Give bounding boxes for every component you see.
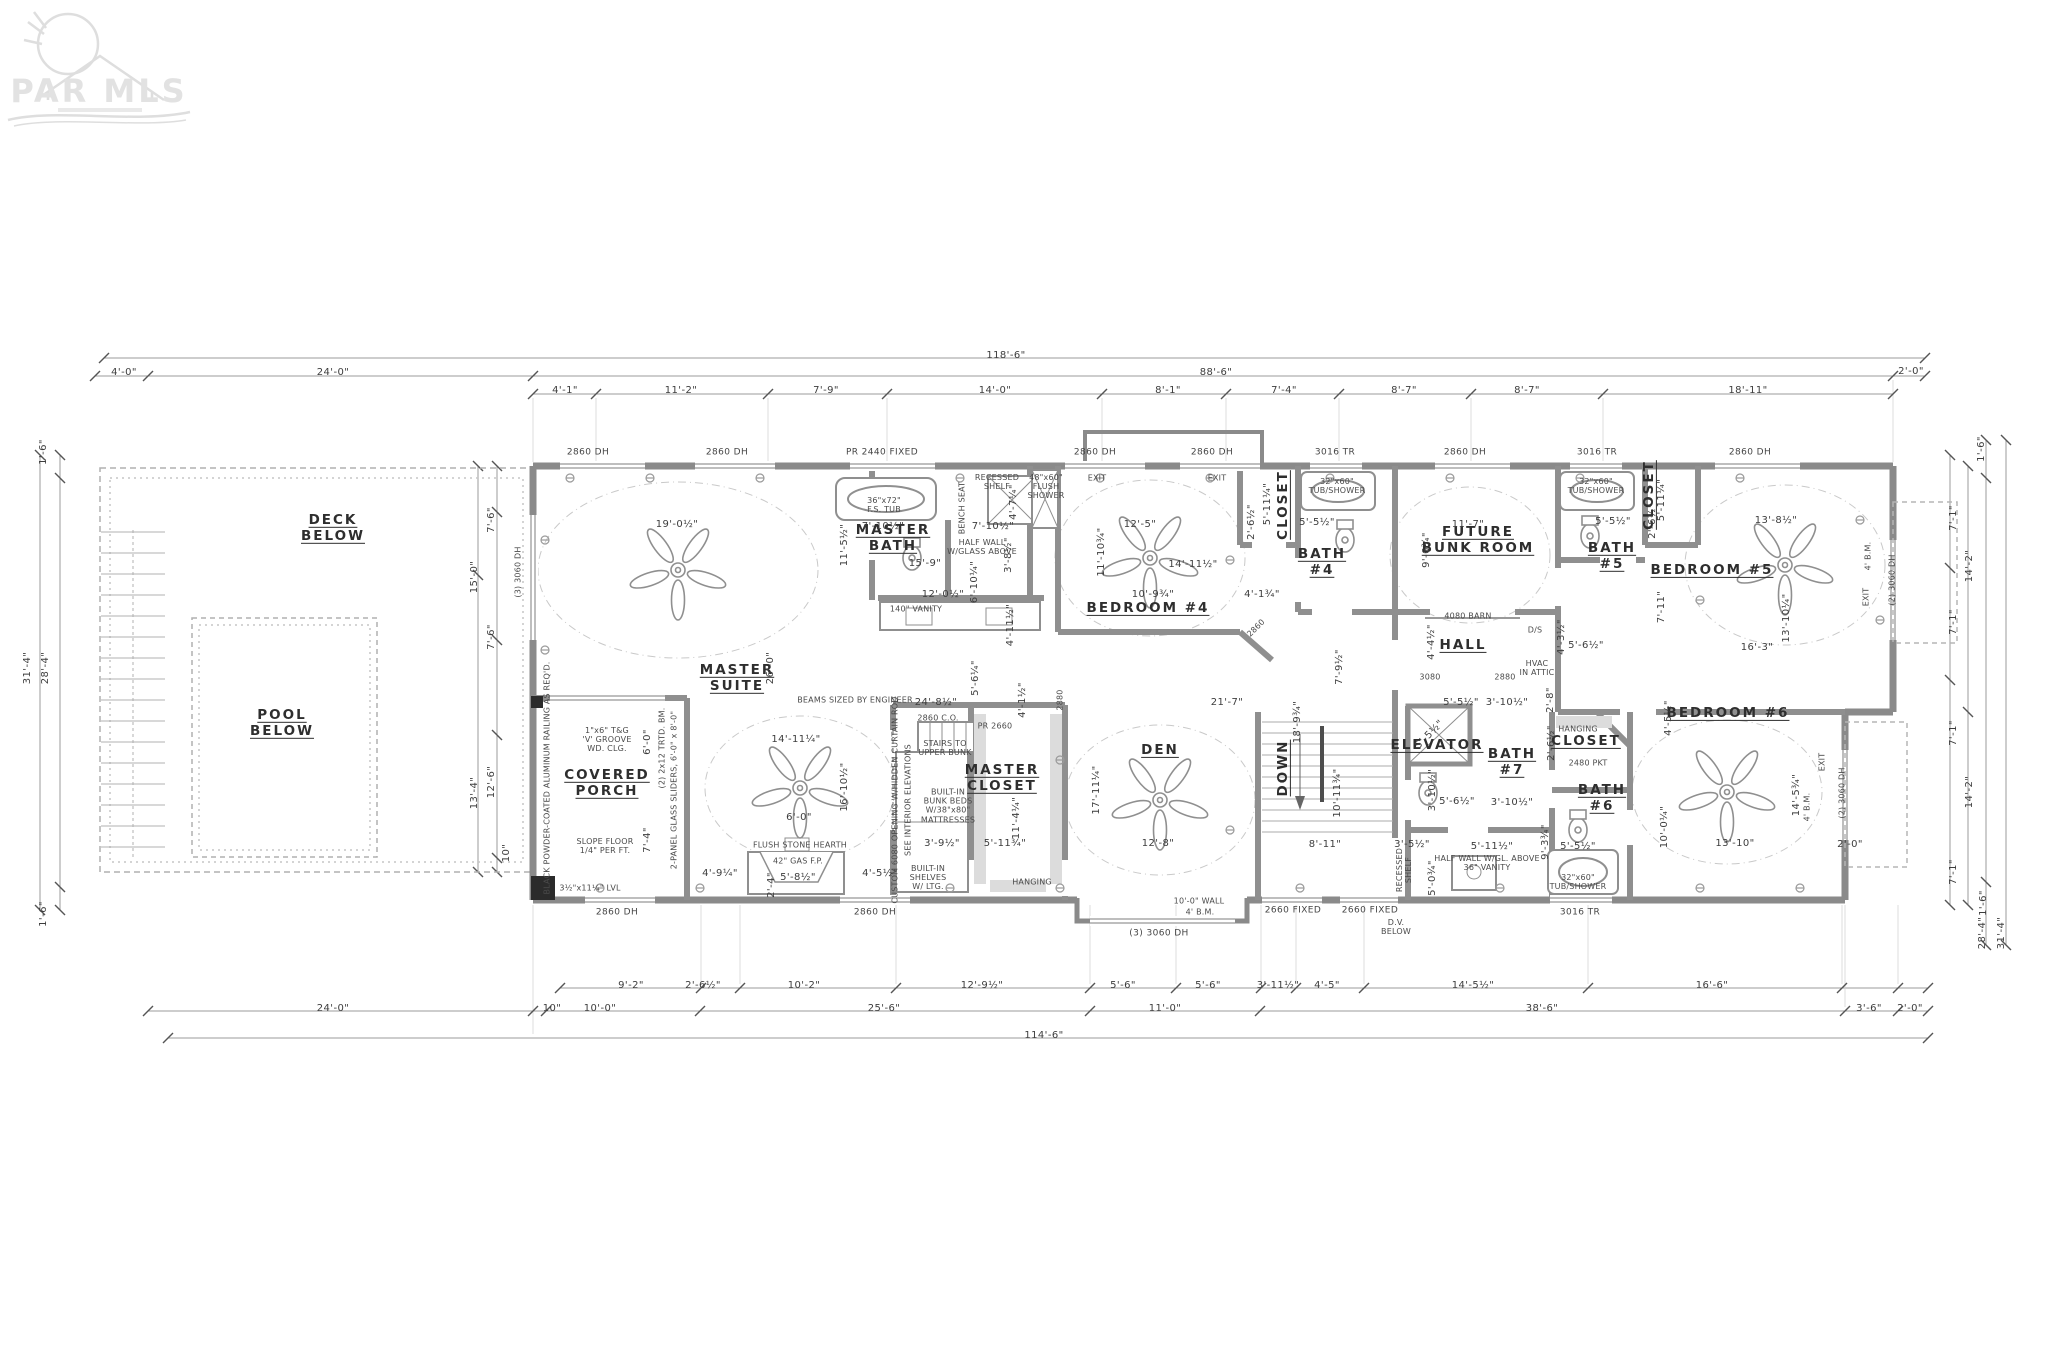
exterior-walls — [533, 432, 1893, 921]
floorplan-drawing — [0, 0, 2048, 1365]
dimension-lines — [40, 358, 2006, 1038]
ceiling-fan — [1735, 521, 1834, 615]
bunk-beds — [896, 752, 968, 892]
ceiling-fan — [1110, 756, 1209, 850]
master-shower — [988, 476, 1036, 524]
deck-below-outline — [100, 468, 533, 872]
watermark-caption — [58, 108, 142, 112]
side-deck-dashes — [1845, 502, 1957, 867]
interior-walls — [533, 466, 1845, 900]
ceiling-wiring-dashes — [538, 480, 1885, 875]
ceiling-fan — [1100, 514, 1199, 608]
electrical-symbols — [541, 474, 1884, 892]
extension-lines — [533, 380, 1898, 1034]
window-symbols — [528, 461, 1898, 926]
toilets — [903, 516, 1599, 842]
main-stairs — [1262, 722, 1393, 832]
master-vanity — [880, 602, 1040, 630]
watermark-text: PAR MLS — [10, 72, 187, 110]
stair-rail — [1295, 726, 1322, 810]
ceiling-fan — [628, 526, 727, 620]
flush-shower — [1032, 470, 1058, 528]
closet-hanging-strips — [974, 714, 1612, 892]
watermark-wave-icon — [8, 112, 190, 120]
ceiling-fan — [1677, 748, 1776, 842]
elevator-cab — [1408, 706, 1470, 764]
bunk-stairs — [918, 722, 974, 752]
dimension-ticks — [35, 353, 2011, 1043]
ceiling-fan — [750, 744, 849, 838]
fireplace — [748, 838, 844, 894]
floorplan-sheet: DECKBELOWPOOLBELOWCOVEREDPORCHMASTERSUIT… — [0, 0, 2048, 1365]
pool-below-outline — [192, 618, 377, 857]
mls-watermark: PAR MLS — [0, 0, 198, 130]
